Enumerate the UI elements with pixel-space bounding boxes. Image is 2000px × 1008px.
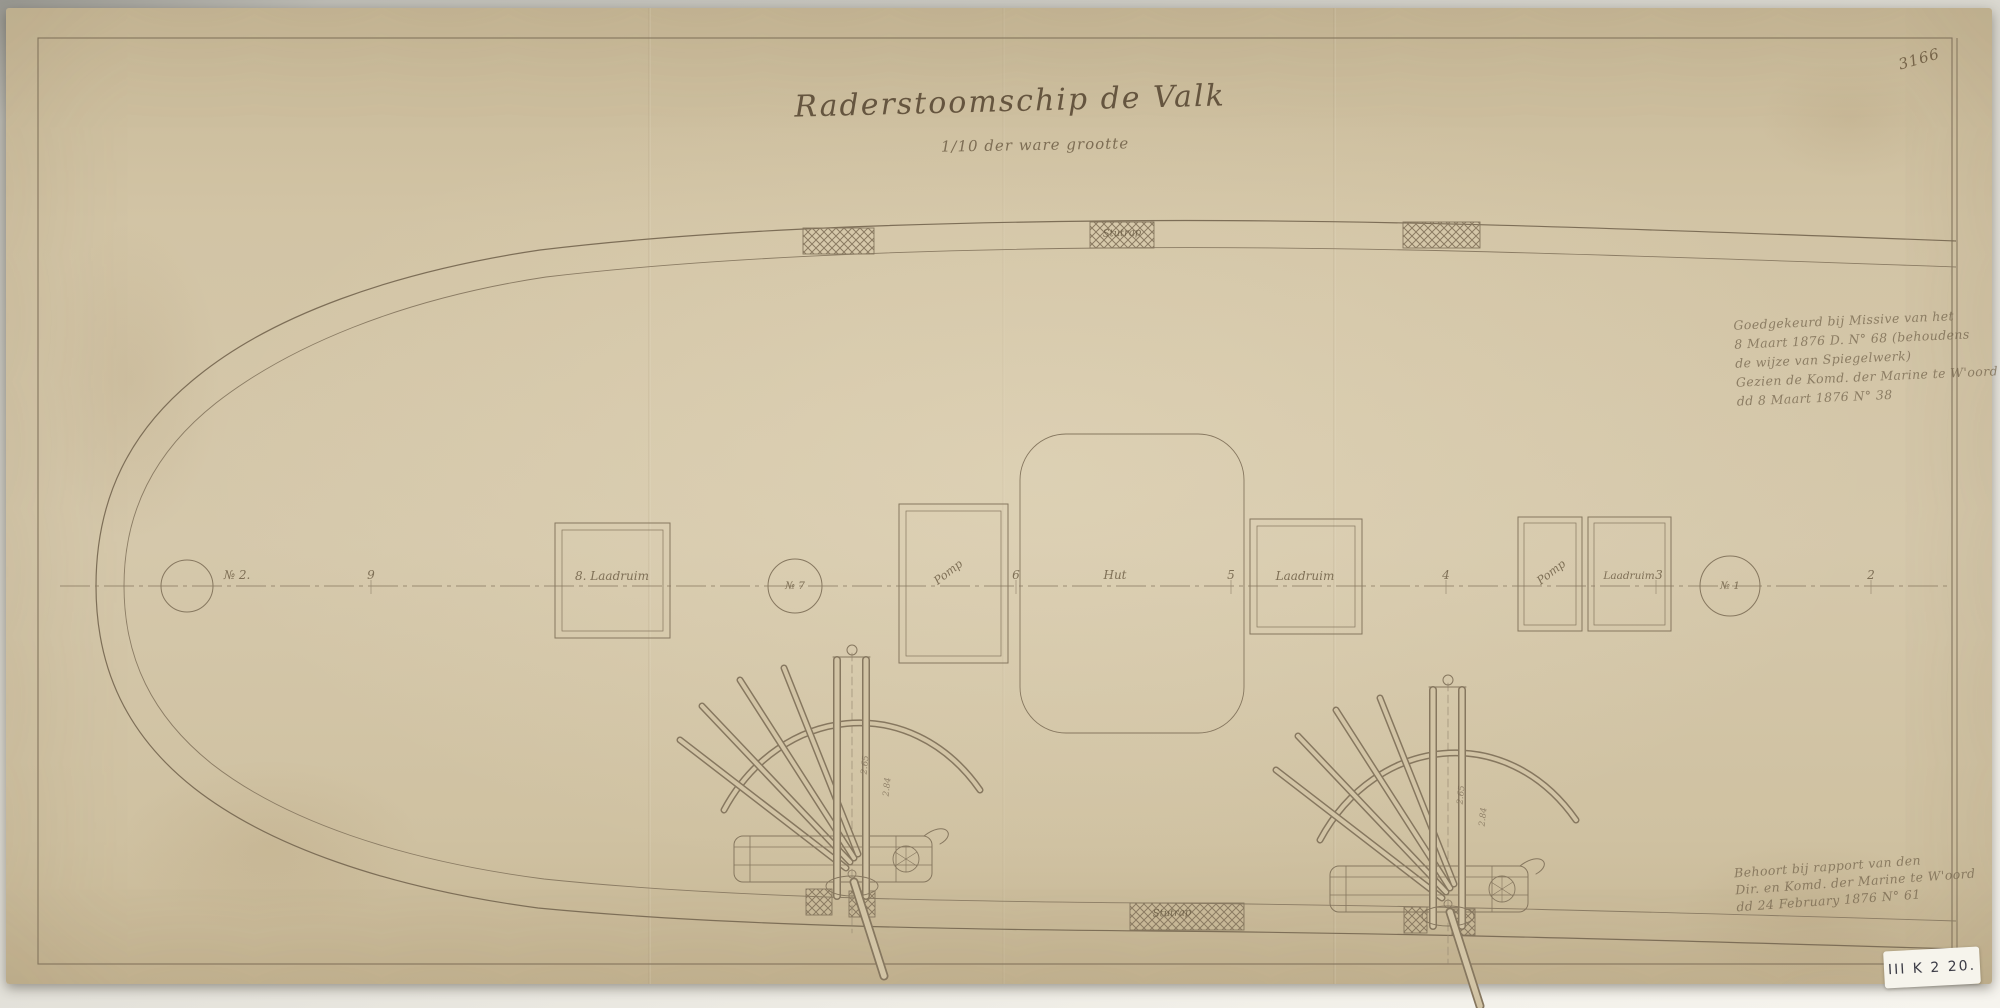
- approval-note: Goedgekeurd bij Missive van het 8 Maart …: [1733, 304, 1999, 410]
- station-label: 6: [1012, 568, 1020, 582]
- deckhouse-label-hut: Hut: [1103, 568, 1126, 582]
- davit-dimension: 2.84: [1478, 807, 1490, 827]
- gangway-label-bottom: Stutrap: [1153, 907, 1192, 919]
- mast-circle-label: № 1: [1720, 580, 1740, 592]
- station-label: 9: [367, 568, 375, 582]
- davit-mechanism-right: [1276, 675, 1576, 1006]
- davit-dimension: 2.65: [1456, 785, 1468, 805]
- station-label: 4: [1442, 568, 1450, 582]
- mast-circle-label: № 7: [785, 580, 805, 592]
- davit-dimension: 2.84: [882, 777, 894, 797]
- hatch-pomp-fore: [899, 504, 1008, 663]
- station-label: 3: [1655, 568, 1663, 582]
- scanned-ship-drawing: { "sheet": { "archive_label": "III K 2 2…: [0, 0, 2000, 1008]
- hatch-label-laadruim-aft: Laadruim: [1603, 570, 1654, 582]
- station-label: 2: [1867, 568, 1875, 582]
- hatch-label-laadruim-mid: Laadruim: [1276, 569, 1335, 583]
- scale-subtitle: 1/10 der ware grootte: [941, 134, 1130, 155]
- station-label: № 2.: [224, 568, 251, 582]
- hull-outline: [96, 221, 1956, 949]
- deckhouse-outline: [1020, 434, 1244, 733]
- archive-label-text: III K 2 20.: [1888, 957, 1977, 978]
- gangway-label-top: Stutrap: [1103, 227, 1142, 239]
- davit-dimension: 2.65: [860, 755, 872, 775]
- hatch-label-laadruim-8: 8. Laadruim: [575, 569, 649, 583]
- davit-mechanism-left: [680, 645, 980, 976]
- sheet-border-frame: [38, 38, 1957, 964]
- bulwark-inner-line: [124, 247, 1956, 921]
- station-label: 5: [1227, 568, 1235, 582]
- archive-label-sticker: III K 2 20.: [1883, 947, 1981, 989]
